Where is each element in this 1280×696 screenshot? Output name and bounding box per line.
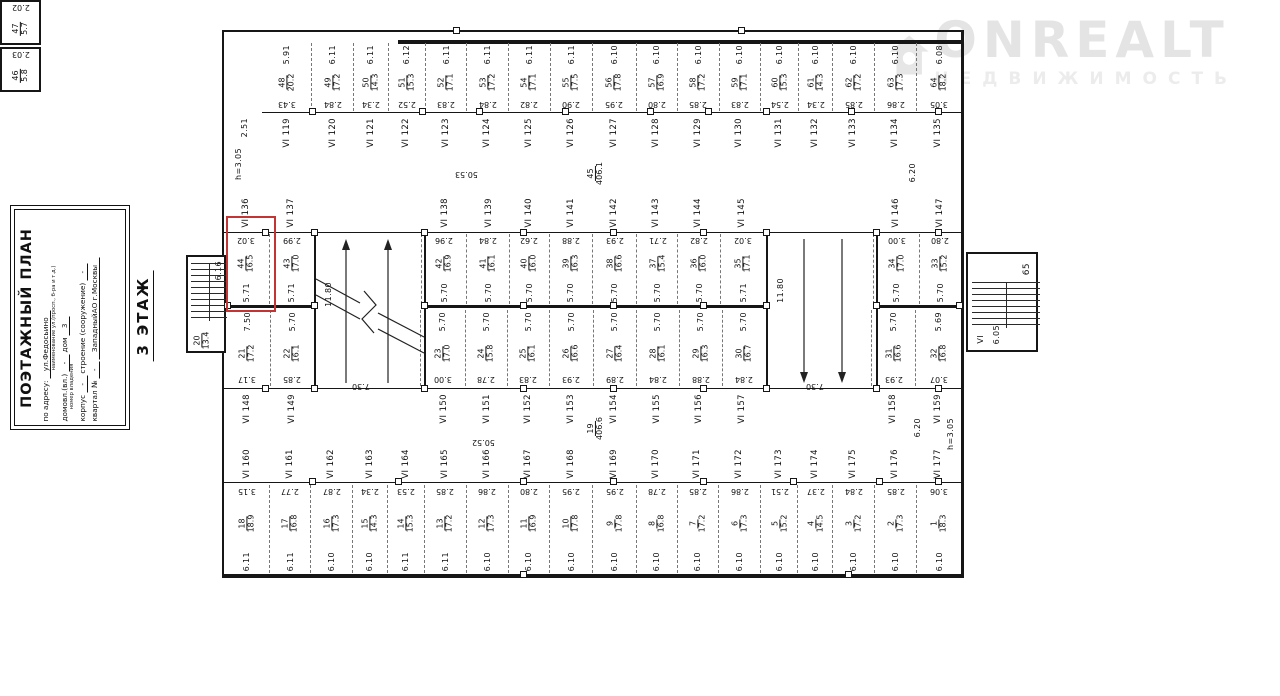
- unit-number-area: 5817.2: [678, 68, 719, 96]
- unit-depth-dim: 6.10: [775, 45, 784, 64]
- floor-plan-page: { "watermark": { "brand": "ONREALT", "su…: [0, 0, 1280, 696]
- vi-cell: VI 151: [466, 392, 507, 430]
- vi-cell: VI 168: [550, 443, 593, 481]
- unit-number-area: 2317.0: [421, 339, 465, 367]
- unit-area: 16.0: [700, 254, 708, 274]
- corridor-label: VI 130: [735, 118, 744, 148]
- corridor-label: VI 122: [402, 118, 411, 148]
- wall-pier: [395, 478, 402, 485]
- wall-pier: [848, 108, 855, 115]
- unit-number-area: 3315.2: [920, 250, 961, 278]
- unit-54: 6.115417.12.82: [508, 43, 549, 111]
- unit-depth-dim: 6.10: [365, 552, 374, 571]
- unit-number-area: 3417.0: [874, 250, 918, 278]
- corridor-label: VI 168: [567, 449, 576, 479]
- unit-area: 17.1: [740, 72, 748, 92]
- corridor-label: VI 157: [738, 394, 747, 424]
- unit-area: 17.8: [572, 514, 580, 534]
- bottom-units-row: 3.151818.96.112.771716.86.112.871617.36.…: [224, 485, 961, 573]
- unit-depth-dim: 6.10: [693, 552, 702, 571]
- unit-depth-dim: 5.71: [287, 283, 296, 302]
- vi-cell: VI 142: [593, 180, 637, 230]
- unit-area: 16.4: [615, 343, 623, 363]
- unit-depth-dim: 5.69: [934, 312, 943, 331]
- unit-width-dim: 2.85: [283, 375, 301, 384]
- unit-area: 16.8: [939, 343, 947, 363]
- unit-number-area: 6217.2: [833, 68, 874, 96]
- unit-49: 6.114917.22.84: [311, 43, 353, 111]
- wall-pier: [520, 385, 527, 392]
- house-value: 3: [60, 316, 70, 335]
- corridor-label: VI 151: [483, 394, 492, 424]
- vi-cell: VI 122: [388, 116, 425, 164]
- unit-63: 6.106317.32.86: [874, 43, 916, 111]
- wall-pier: [935, 478, 942, 485]
- unit-26: 5.702616.62.93: [549, 310, 593, 386]
- wall-pier: [700, 229, 707, 236]
- unit-number-area: 3016.7: [723, 339, 765, 367]
- unit-area: 15.3: [406, 514, 414, 534]
- corridor-label: VI 129: [694, 118, 703, 148]
- unit-number-area: 717.2: [678, 510, 719, 538]
- unit-38: 2.933816.65.70: [592, 234, 636, 304]
- unit-number-area: 2916.3: [680, 339, 722, 367]
- unit-width-dim: 2.62: [520, 236, 538, 245]
- unit-6: 2.86617.36.10: [718, 485, 760, 573]
- corridor-label: VI 170: [652, 449, 661, 479]
- unit-depth-dim: 5.70: [889, 312, 898, 331]
- unit-number-area: 475.7: [3, 14, 38, 42]
- block-value: -: [90, 361, 100, 378]
- vi-cell: VI 135: [916, 116, 961, 164]
- left-wall-dim: 2.51: [240, 118, 249, 141]
- unit-number-area: 6418.2: [917, 68, 961, 96]
- vi-cell: VI 164: [387, 443, 424, 481]
- title-block-inner-frame: ПОЭТАЖНЫЙ ПЛАН по адресу: ул.Федосьино н…: [14, 209, 126, 426]
- corridor-top-length: 50.53: [455, 162, 478, 181]
- corridor-label: VI 127: [610, 118, 619, 148]
- unit-area: 17.0: [292, 254, 300, 274]
- unit-number-area: 2516.1: [508, 339, 549, 367]
- unit-width-dim: 2.88: [562, 236, 580, 245]
- unit-area: 17.5: [572, 72, 580, 92]
- wall-pier: [520, 302, 527, 309]
- unit-18: 3.151818.96.11: [224, 485, 269, 573]
- unit-width-dim: 3.15: [238, 487, 256, 496]
- unit-40: 2.624016.05.70: [509, 234, 549, 304]
- unit-area: 16.6: [894, 343, 902, 363]
- ownership-line: домовл.(вл.) - дом 3: [60, 214, 69, 421]
- unit-depth-dim: 6.10: [327, 552, 336, 571]
- vi-cell: VI 120: [312, 116, 354, 164]
- unit-area: 17.2: [446, 514, 454, 534]
- unit-number-area: 317.2: [833, 510, 874, 538]
- corridor-label: VI 154: [610, 394, 619, 424]
- unit-width-dim: 2.52: [398, 100, 416, 109]
- unit-area: 17.1: [744, 254, 752, 274]
- unit-width-dim: 2.80: [520, 487, 538, 496]
- unit-50: 6.115014.32.34: [353, 43, 388, 111]
- corridor-label: VI 155: [653, 394, 662, 424]
- unit-number-area: 816.8: [637, 510, 677, 538]
- unit-3: 2.84317.26.10: [832, 485, 874, 573]
- unit-depth-dim: 5.70: [524, 312, 533, 331]
- unit-depth-dim: 5.70: [610, 312, 619, 331]
- unit-number-area: 6317.3: [875, 68, 916, 96]
- unit-area: 17.2: [854, 514, 862, 534]
- unit-number-area: 5014.3: [354, 68, 388, 96]
- unit-width-dim: 2.86: [887, 100, 905, 109]
- corridor-label: VI 176: [891, 449, 900, 479]
- corridor-label: VI 160: [243, 449, 252, 479]
- unit-width-dim: 2.93: [885, 375, 903, 384]
- ownership-value: -: [60, 354, 70, 371]
- unit-depth-dim: 6.12: [402, 45, 411, 64]
- corridor-label: VI 137: [287, 198, 296, 228]
- unit-width-dim: 2.84: [845, 487, 863, 496]
- wall-top-row-bottom: [262, 112, 961, 113]
- unit-number-area: 1818.9: [224, 510, 269, 538]
- unit-width-dim: 2.37: [807, 487, 825, 496]
- unit-35: 3.023517.15.71: [720, 234, 766, 304]
- unit-number-area: 3616.0: [678, 250, 720, 278]
- corridor-label: VI 152: [524, 394, 533, 424]
- unit-area: 17.2: [854, 72, 862, 92]
- corridor-label: VI 132: [811, 118, 820, 148]
- vi-cell: VI 140: [510, 180, 549, 230]
- top-units-row: 5.914820.23.436.114917.22.846.115014.32.…: [262, 43, 961, 111]
- unit-56: 6.105617.82.95: [592, 43, 635, 111]
- unit-area: 15.2: [941, 254, 949, 274]
- corridor-top-right-dim: 6.20: [908, 163, 917, 186]
- unit-area: 17.3: [896, 514, 904, 534]
- corridor-label: VI 125: [525, 118, 534, 148]
- unit-39: 2.883916.35.70: [549, 234, 593, 304]
- corridor-label: VI 148: [243, 394, 252, 424]
- unit-area: 17.2: [248, 343, 256, 363]
- unit-depth-dim: 7.50: [243, 312, 252, 331]
- unit-width-dim: 2.83: [437, 100, 455, 109]
- unit-depth-dim: 6.10: [524, 552, 533, 571]
- vi-cell: VI 162: [311, 443, 353, 481]
- unit-58: 6.105817.22.85: [677, 43, 719, 111]
- block-line: квартал № - ЗападныйАО г.Москвы: [90, 214, 99, 421]
- unit-width-dim: 3.00: [434, 375, 452, 384]
- unit-5: 2.51515.26.10: [760, 485, 797, 573]
- unit-depth-dim: 6.10: [935, 552, 944, 571]
- wall-pier: [520, 478, 527, 485]
- unit-area: 17.8: [615, 514, 623, 534]
- corridor-bottom-height-note: h=3.05: [946, 418, 955, 454]
- unit-area: 17.8: [615, 72, 623, 92]
- unit-57: 6.105716.92.80: [636, 43, 677, 111]
- wall-pier: [845, 571, 852, 578]
- wall-pier: [705, 108, 712, 115]
- unit-number-area: 4820.2: [262, 68, 311, 96]
- unit-number-area: 5217.1: [426, 68, 467, 96]
- unit-area: 17.0: [897, 254, 905, 274]
- unit-area: 16.3: [571, 254, 579, 274]
- unit-37: 2.713715.45.70: [636, 234, 677, 304]
- corridor-label: VI 177: [934, 449, 943, 479]
- unit-area: 16.3: [701, 343, 709, 363]
- unit-width-dim: 2.83: [519, 375, 537, 384]
- unit-13: 2.851317.26.11: [424, 485, 466, 573]
- vi-cell: VI 123: [425, 116, 467, 164]
- corridor-label: VI 165: [441, 449, 450, 479]
- ramp-shaft-right: [768, 233, 876, 389]
- unit-area: 16.9: [529, 514, 537, 534]
- unit-number-area: 4116.1: [467, 250, 509, 278]
- unit-number-area: 3916.3: [550, 250, 593, 278]
- unit-depth-dim: 6.11: [401, 552, 410, 571]
- unit-number-area: 118.3: [917, 510, 961, 538]
- unit-area: 14.3: [371, 72, 379, 92]
- unit-depth-dim: 6.10: [483, 552, 492, 571]
- corridor-label: VI 120: [329, 118, 338, 148]
- vi-cell: VI 169: [593, 443, 636, 481]
- unit-number-area: 5417.1: [509, 68, 549, 96]
- unit-area: 16.7: [744, 343, 752, 363]
- corridor-top-room-label: 45406.1: [583, 165, 608, 182]
- corridor-label: VI 166: [483, 449, 492, 479]
- unit-59: 6.105917.12.83: [719, 43, 761, 111]
- corridor-label: VI 147: [936, 198, 945, 228]
- unit-number-area: 1317.2: [425, 510, 466, 538]
- corridor-label: VI 131: [775, 118, 784, 148]
- vi-cell: VI 163: [353, 443, 387, 481]
- unit-area: 17.3: [896, 72, 904, 92]
- unit-width-dim: 2.93: [562, 375, 580, 384]
- wall-pier: [421, 229, 428, 236]
- vi-cell: VI 132: [798, 116, 832, 164]
- wall-pier: [309, 108, 316, 115]
- wall-pier: [453, 27, 460, 34]
- unit-area: 17.1: [447, 72, 455, 92]
- unit-number-area: 1617.3: [311, 510, 352, 538]
- corridor-label: VI 119: [283, 118, 292, 148]
- unit-14: 2.531415.36.11: [387, 485, 424, 573]
- stairs-left-treads: [191, 263, 227, 321]
- vi-upper-strip: VI 136VI 137VI 138VI 139VI 140VI 141VI 1…: [224, 180, 961, 230]
- unit-depth-dim: 6.11: [525, 45, 534, 64]
- address-line: по адресу: ул.Федосьино: [41, 214, 50, 421]
- unit-60: 6.106015.32.54: [760, 43, 797, 111]
- corridor-label: VI 162: [327, 449, 336, 479]
- wall-pier: [311, 229, 318, 236]
- wall-pier: [873, 229, 880, 236]
- unit-area: 14.5: [816, 514, 824, 534]
- unit-53: 6.115317.22.84: [466, 43, 508, 111]
- unit-number-area: 2216.1: [271, 339, 313, 367]
- vi-cell: VI 160: [224, 443, 270, 481]
- unit-width-dim: 3.17: [238, 375, 256, 384]
- wall-pier: [419, 108, 426, 115]
- unit-width-dim: 2.78: [477, 375, 495, 384]
- unit-width-dim: 2.85: [887, 487, 905, 496]
- unit-width-dim: 2.82: [520, 100, 538, 109]
- vi-cell: VI 146: [874, 180, 919, 230]
- vi-cell: VI 150: [422, 392, 467, 430]
- unit-depth-dim: 5.70: [696, 312, 705, 331]
- unit-4: 2.37414.56.10: [797, 485, 832, 573]
- unit-55: 6.115517.52.90: [550, 43, 593, 111]
- building-line: корпус - строение (сооружение) -: [78, 214, 87, 421]
- vi-cell: VI 121: [354, 116, 388, 164]
- wall-pier: [700, 478, 707, 485]
- corridor-label: VI 161: [286, 449, 295, 479]
- unit-depth-dim: 5.70: [440, 283, 449, 302]
- unit-52: 6.115217.12.83: [425, 43, 467, 111]
- vi-cell: VI 131: [761, 116, 798, 164]
- wall-pier: [700, 302, 707, 309]
- corridor-label: VI 174: [811, 449, 820, 479]
- wall-pier: [935, 108, 942, 115]
- unit-width-dim: 2.80: [931, 236, 949, 245]
- unit-depth-dim: 6.10: [735, 45, 744, 64]
- unit-area: 18.2: [940, 72, 948, 92]
- wall-pier: [610, 302, 617, 309]
- stairs-left-room-label: 2013.4: [192, 332, 212, 349]
- vi-cell: VI 129: [677, 116, 719, 164]
- stairs-right: 65 VI 6.05: [966, 252, 1038, 352]
- unit-width-dim: 2.95: [605, 100, 623, 109]
- unit-31: 5.703116.62.93: [871, 310, 915, 386]
- unit-number-area: 2117.2: [224, 339, 270, 367]
- unit-area: 15.4: [658, 254, 666, 274]
- unit-width-dim: 2.34: [361, 487, 379, 496]
- unit-area: 16.1: [489, 254, 497, 274]
- address-value: ул.Федосьино: [41, 310, 51, 378]
- unit-depth-dim: 6.10: [735, 552, 744, 571]
- corridor-bottom-room-label: 19406.6: [583, 420, 608, 437]
- corner-rooms-block: 2.02475.72.03465.8: [0, 0, 41, 92]
- unit-9: 2.95917.86.10: [592, 485, 635, 573]
- unit-area: 15.8: [487, 343, 495, 363]
- unit-number-area: 6015.3: [761, 68, 797, 96]
- unit-number-area: 2716.4: [594, 339, 636, 367]
- vi-cell: VI 139: [468, 180, 511, 230]
- unit-depth-dim: 6.10: [849, 552, 858, 571]
- corridor-label: VI 171: [693, 449, 702, 479]
- unit-depth-dim: 5.70: [936, 283, 945, 302]
- unit-34: 3.003417.05.70: [873, 234, 918, 304]
- unit-29: 5.702916.32.88: [679, 310, 722, 386]
- corridor-label: VI 128: [652, 118, 661, 148]
- wall-bottom-row-top: [224, 482, 961, 483]
- title-block: ПОЭТАЖНЫЙ ПЛАН по адресу: ул.Федосьино н…: [10, 205, 130, 430]
- corridor-label: VI 150: [440, 394, 449, 424]
- unit-depth-dim: 5.70: [566, 283, 575, 302]
- wall-pier: [476, 108, 483, 115]
- vi-top-strip: VI 119VI 120VI 121VI 122VI 123VI 124VI 1…: [262, 116, 961, 164]
- unit-area: 18.3: [940, 514, 948, 534]
- unit-number-area: 3216.8: [916, 339, 961, 367]
- vi-cell: VI 145: [719, 180, 764, 230]
- ramp-left-length-dim: 11.80: [324, 282, 333, 311]
- address-caption: наименование ул.(просп., б-ра и т.д.): [51, 212, 57, 423]
- unit-area: 16.6: [572, 343, 580, 363]
- wall-pier: [610, 385, 617, 392]
- watermark-subtitle: НЕДВИЖИМОСТЬ: [934, 69, 1238, 89]
- wall-pier: [700, 385, 707, 392]
- corridor-label: VI 173: [775, 449, 784, 479]
- vi-cell: [763, 392, 871, 430]
- unit-depth-dim: 6.10: [567, 552, 576, 571]
- corridor-label: VI 149: [288, 394, 297, 424]
- unit-area: 16.1: [658, 343, 666, 363]
- vi-cell: VI 127: [593, 116, 636, 164]
- unit-2: 2.85217.36.10: [874, 485, 916, 573]
- vi-cell: VI 147: [919, 180, 961, 230]
- unit-area: 16.1: [293, 343, 301, 363]
- unit-42: 2.964216.95.70: [421, 234, 466, 304]
- unit-width-dim: 2.96: [435, 236, 453, 245]
- floor-label-text: 3 ЭТАЖ: [134, 271, 154, 362]
- wall-pier: [262, 385, 269, 392]
- watermark-brand: ONREALT: [934, 14, 1238, 66]
- unit-area: 17.0: [443, 343, 451, 363]
- unit-area: 16.8: [657, 514, 665, 534]
- unit-width-dim: 2.85: [436, 487, 454, 496]
- corridor-bottom-length: 50.52: [472, 430, 495, 449]
- unit-width-dim: 2.85: [689, 487, 707, 496]
- unit-width-dim: 2.95: [606, 487, 624, 496]
- vi-cell: VI 170: [636, 443, 677, 481]
- wall-pier: [610, 229, 617, 236]
- corridor-label: VI 139: [485, 198, 494, 228]
- unit-11: 2.801116.96.10: [508, 485, 549, 573]
- unit-area: 16.1: [529, 343, 537, 363]
- wall-pier: [763, 229, 770, 236]
- unit-depth-dim: 5.70: [525, 283, 534, 302]
- corridor-label: VI 142: [610, 198, 619, 228]
- unit-area: 15.3: [780, 72, 788, 92]
- unit-depth-dim: 5.70: [739, 312, 748, 331]
- unit-depth-dim: 5.70: [482, 312, 491, 331]
- unit-area: 18.9: [247, 514, 255, 534]
- corridor-label: VI 126: [567, 118, 576, 148]
- wall-pier: [763, 385, 770, 392]
- unit-number-area: 2616.6: [550, 339, 593, 367]
- unit-width-dim: 2.51: [771, 487, 789, 496]
- unit-area: 16.9: [657, 72, 665, 92]
- corridor-label: VI 153: [567, 394, 576, 424]
- unit-depth-dim: 6.10: [849, 45, 858, 64]
- unit-depth-dim: 6.10: [891, 552, 900, 571]
- district-value: ЗападныйАО г.Москвы: [90, 257, 100, 358]
- unit-depth-dim: 5.70: [653, 283, 662, 302]
- unit-number-area: 1116.9: [509, 510, 549, 538]
- unit-width-dim: 2.83: [731, 100, 749, 109]
- corridor-label: VI 167: [524, 449, 533, 479]
- unit-number-area: 1514.3: [353, 510, 387, 538]
- unit-area: 17.2: [488, 72, 496, 92]
- center-wall-right-seg: [876, 305, 961, 308]
- wall-pier: [763, 302, 770, 309]
- unit-depth-dim: 5.70: [653, 312, 662, 331]
- vi-cell: VI 176: [874, 443, 916, 481]
- unit-width-dim: 2.53: [397, 487, 415, 496]
- ramp-right-length-dim: 11.80: [776, 278, 785, 307]
- corner-room-dim: 2.03: [12, 50, 30, 59]
- unit-width-dim: 2.95: [562, 487, 580, 496]
- vi-cell: [765, 180, 874, 230]
- wall-pier: [876, 478, 883, 485]
- unit-27: 5.702716.42.89: [593, 310, 636, 386]
- unit-depth-dim: 6.08: [935, 45, 944, 64]
- unit-number-area: 3715.4: [637, 250, 677, 278]
